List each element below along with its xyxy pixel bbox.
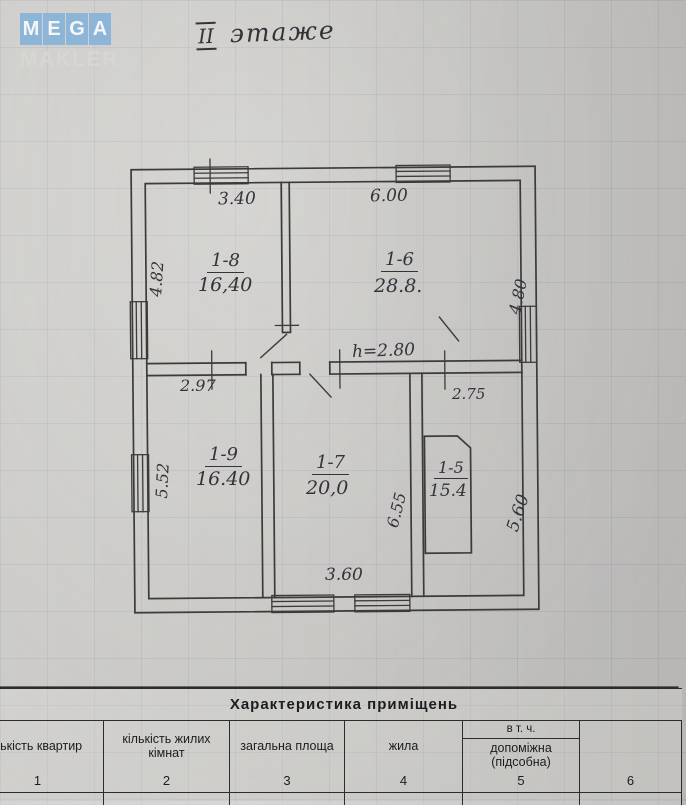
floor-plan-drawing <box>0 0 686 800</box>
wall-1-8-1-6 <box>281 182 290 332</box>
ceiling-height-note: h=2.80 <box>352 340 416 362</box>
room-1-9-area: 16.40 <box>196 468 250 490</box>
header-total-area: загальна площа <box>230 721 345 771</box>
column-number-5: 5 <box>463 771 580 792</box>
table-header-row: лькість квартир кількість жилих кімнат з… <box>0 721 682 771</box>
dim-room5-width: 2.75 <box>452 385 485 403</box>
header-living-rooms-count: кількість жилих кімнат <box>104 721 230 771</box>
header-apartments-count: лькість квартир <box>0 721 104 771</box>
wall-1-7-1-5 <box>410 373 424 596</box>
dim-room8-width: 3.40 <box>218 189 256 210</box>
room-1-6-number: 1-6 <box>381 249 418 272</box>
scanned-floor-plan-page: { "logo": { "tiles": ["M","E","G","A"], … <box>0 0 686 800</box>
table-column-numbers-row: 1 2 3 4 5 6 <box>0 771 682 793</box>
characteristics-table: Характеристика приміщень лькість квартир… <box>0 688 682 805</box>
column-number-4: 4 <box>345 771 463 792</box>
room-1-5-area: 15.4 <box>429 481 467 501</box>
room-1-7-area: 20,0 <box>306 477 348 499</box>
table-title: Характеристика приміщень <box>0 689 682 721</box>
room-1-8-area: 16,40 <box>198 274 252 296</box>
column-number-6: 6 <box>580 771 682 792</box>
header-including-label: в т. ч. <box>463 721 579 739</box>
room-1-9-number: 1-9 <box>205 444 242 467</box>
column-number-2: 2 <box>104 771 230 792</box>
header-living-area: жила <box>345 721 463 771</box>
middle-wall <box>147 360 522 375</box>
header-auxiliary-area: в т. ч. допоміжна (підсобна) <box>463 721 580 771</box>
header-empty-column <box>580 721 682 771</box>
room-1-8-number: 1-8 <box>207 250 244 273</box>
dim-room6-width: 6.00 <box>370 186 408 207</box>
wall-1-9-1-7 <box>261 375 275 598</box>
room-1-6-area: 28.8. <box>374 275 422 297</box>
header-auxiliary-label: допоміжна (підсобна) <box>463 739 579 771</box>
dim-room9-width: 2.97 <box>180 376 216 395</box>
dim-room9-height: 5.52 <box>152 462 173 499</box>
room-1-5-number: 1-5 <box>434 458 468 479</box>
column-number-1: 1 <box>0 771 104 792</box>
dim-room8-height: 4.82 <box>146 260 167 297</box>
dim-room7-width: 3.60 <box>325 565 363 585</box>
table-clipped-row <box>0 793 682 805</box>
column-number-3: 3 <box>230 771 345 792</box>
room-1-7-number: 1-7 <box>312 452 349 475</box>
